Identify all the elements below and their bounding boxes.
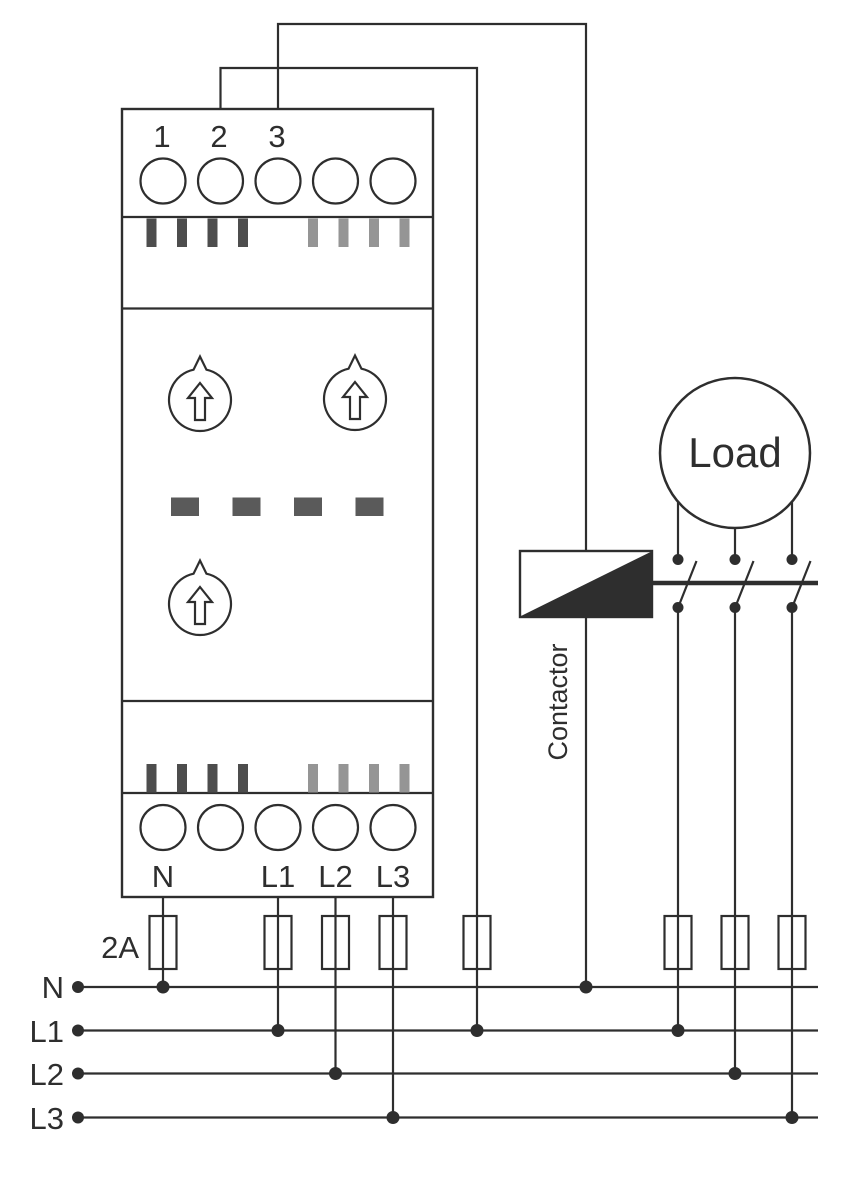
- terminal-label-3: 3: [268, 119, 285, 154]
- supply-bus: N L1 L2 L3: [30, 970, 818, 1136]
- contact-dot: [730, 602, 741, 613]
- contact-dot: [673, 602, 684, 613]
- junction-dot: [672, 1024, 685, 1037]
- vent-stripe-dark: [208, 219, 218, 248]
- bus-label-l3: L3: [30, 1101, 64, 1136]
- junction-dot: [786, 1111, 799, 1124]
- terminal-label-2: 2: [210, 119, 227, 154]
- vent-stripe-light: [400, 219, 410, 248]
- wiring-diagram-page: 1 2 3: [0, 0, 855, 1183]
- vent-stripe-light: [308, 219, 318, 248]
- bus-start-dot: [72, 981, 84, 993]
- bus-label-l1: L1: [30, 1014, 64, 1049]
- relay-device-body: [122, 109, 433, 897]
- vent-stripe-dark: [147, 219, 157, 248]
- bus-start-dot: [72, 1068, 84, 1080]
- load-branch: Load: [652, 378, 818, 1118]
- vent-stripe-light: [369, 764, 379, 793]
- terminal-circle-5: [371, 159, 416, 204]
- vent-stripe-dark: [147, 764, 157, 793]
- vent-stripe-dark: [177, 219, 187, 248]
- terminal-circle-l3: [371, 805, 416, 850]
- terminal-circle-1: [141, 159, 186, 204]
- terminal-label-n: N: [152, 859, 174, 894]
- bus-start-dot: [72, 1025, 84, 1037]
- contact-dot: [787, 554, 798, 565]
- terminal-circle-l1: [256, 805, 301, 850]
- fuses: 2A: [101, 916, 805, 969]
- bus-label-l2: L2: [30, 1057, 64, 1092]
- terminal-circle-3: [256, 159, 301, 204]
- vent-stripe-dark: [238, 764, 248, 793]
- terminal-label-l3: L3: [376, 859, 410, 894]
- dash-segment: [294, 498, 322, 517]
- junction-dot: [157, 981, 170, 994]
- vent-stripe-light: [308, 764, 318, 793]
- load-label: Load: [688, 429, 781, 476]
- contact-dot: [673, 554, 684, 565]
- dash-segment: [171, 498, 199, 517]
- junction-dot: [580, 981, 593, 994]
- dash-segment: [233, 498, 261, 517]
- supply-wires: [163, 897, 393, 1118]
- vent-stripe-light: [339, 764, 349, 793]
- bus-start-dot: [72, 1112, 84, 1124]
- terminal-circle-2: [198, 159, 243, 204]
- terminal-circle-n: [141, 805, 186, 850]
- vent-stripe-dark: [177, 764, 187, 793]
- three-phase-monitoring-relay-wiring-diagram: 1 2 3: [0, 0, 855, 1183]
- vent-stripe-light: [369, 219, 379, 248]
- terminal-label-1: 1: [153, 119, 170, 154]
- terminal-label-l1: L1: [261, 859, 295, 894]
- contact-dot: [787, 602, 798, 613]
- terminal-circle-4: [313, 159, 358, 204]
- junction-dot: [272, 1024, 285, 1037]
- vent-stripe-light: [339, 219, 349, 248]
- terminal-label-l2: L2: [318, 859, 352, 894]
- junction-dot: [387, 1111, 400, 1124]
- junction-dot: [729, 1067, 742, 1080]
- contact-dot: [730, 554, 741, 565]
- monitoring-relay-device: 1 2 3: [122, 109, 433, 897]
- fuse-rating-label: 2A: [101, 930, 139, 965]
- junction-dot: [329, 1067, 342, 1080]
- bus-label-n: N: [42, 970, 64, 1005]
- junction-dot: [471, 1024, 484, 1037]
- contactor-label: Contactor: [543, 643, 573, 760]
- vent-stripe-dark: [208, 764, 218, 793]
- vent-stripe-light: [400, 764, 410, 793]
- terminal-circle-l2: [313, 805, 358, 850]
- vent-stripe-dark: [238, 219, 248, 248]
- terminal-circle-spare: [198, 805, 243, 850]
- dash-segment: [356, 498, 384, 517]
